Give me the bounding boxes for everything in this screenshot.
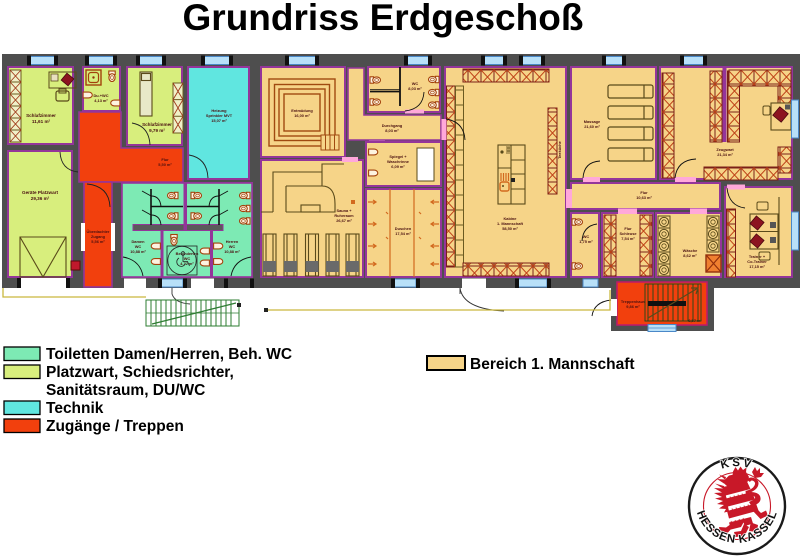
svg-text:Du.+WC4,13 m²: Du.+WC4,13 m² [93,93,108,103]
svg-text:Sanitätsraum, DU/WC: Sanitätsraum, DU/WC [46,382,205,399]
svg-text:Zugänge / Treppen: Zugänge / Treppen [46,418,184,435]
svg-text:Grundriss Erdgeschoß: Grundriss Erdgeschoß [183,0,584,38]
svg-text:Technik: Technik [46,400,104,417]
svg-text:Massage21,60 m²: Massage21,60 m² [584,119,601,129]
svg-text:Trainer +Co-Trainer17,15 m²: Trainer +Co-Trainer17,15 m² [747,254,767,269]
svg-text:Toiletten Damen/Herren, Beh. W: Toiletten Damen/Herren, Beh. WC [46,346,292,363]
svg-text:Wäsche8,62 m²: Wäsche8,62 m² [683,248,699,258]
svg-text:Platzwart, Schiedsrichter,: Platzwart, Schiedsrichter, [46,364,234,381]
svg-text:8,57 m²: 8,57 m² [688,318,702,323]
svg-text:Duschen17,54 m²: Duschen17,54 m² [395,226,412,236]
svg-text:Teeküche: Teeküche [557,140,562,158]
svg-text:Bereich 1. Mannschaft: Bereich 1. Mannschaft [470,356,635,373]
svg-text:Zeugwart21,34 m²: Zeugwart21,34 m² [716,147,734,157]
svg-text:Sauna +Ruheraum26,67 m²: Sauna +Ruheraum26,67 m² [334,208,354,223]
